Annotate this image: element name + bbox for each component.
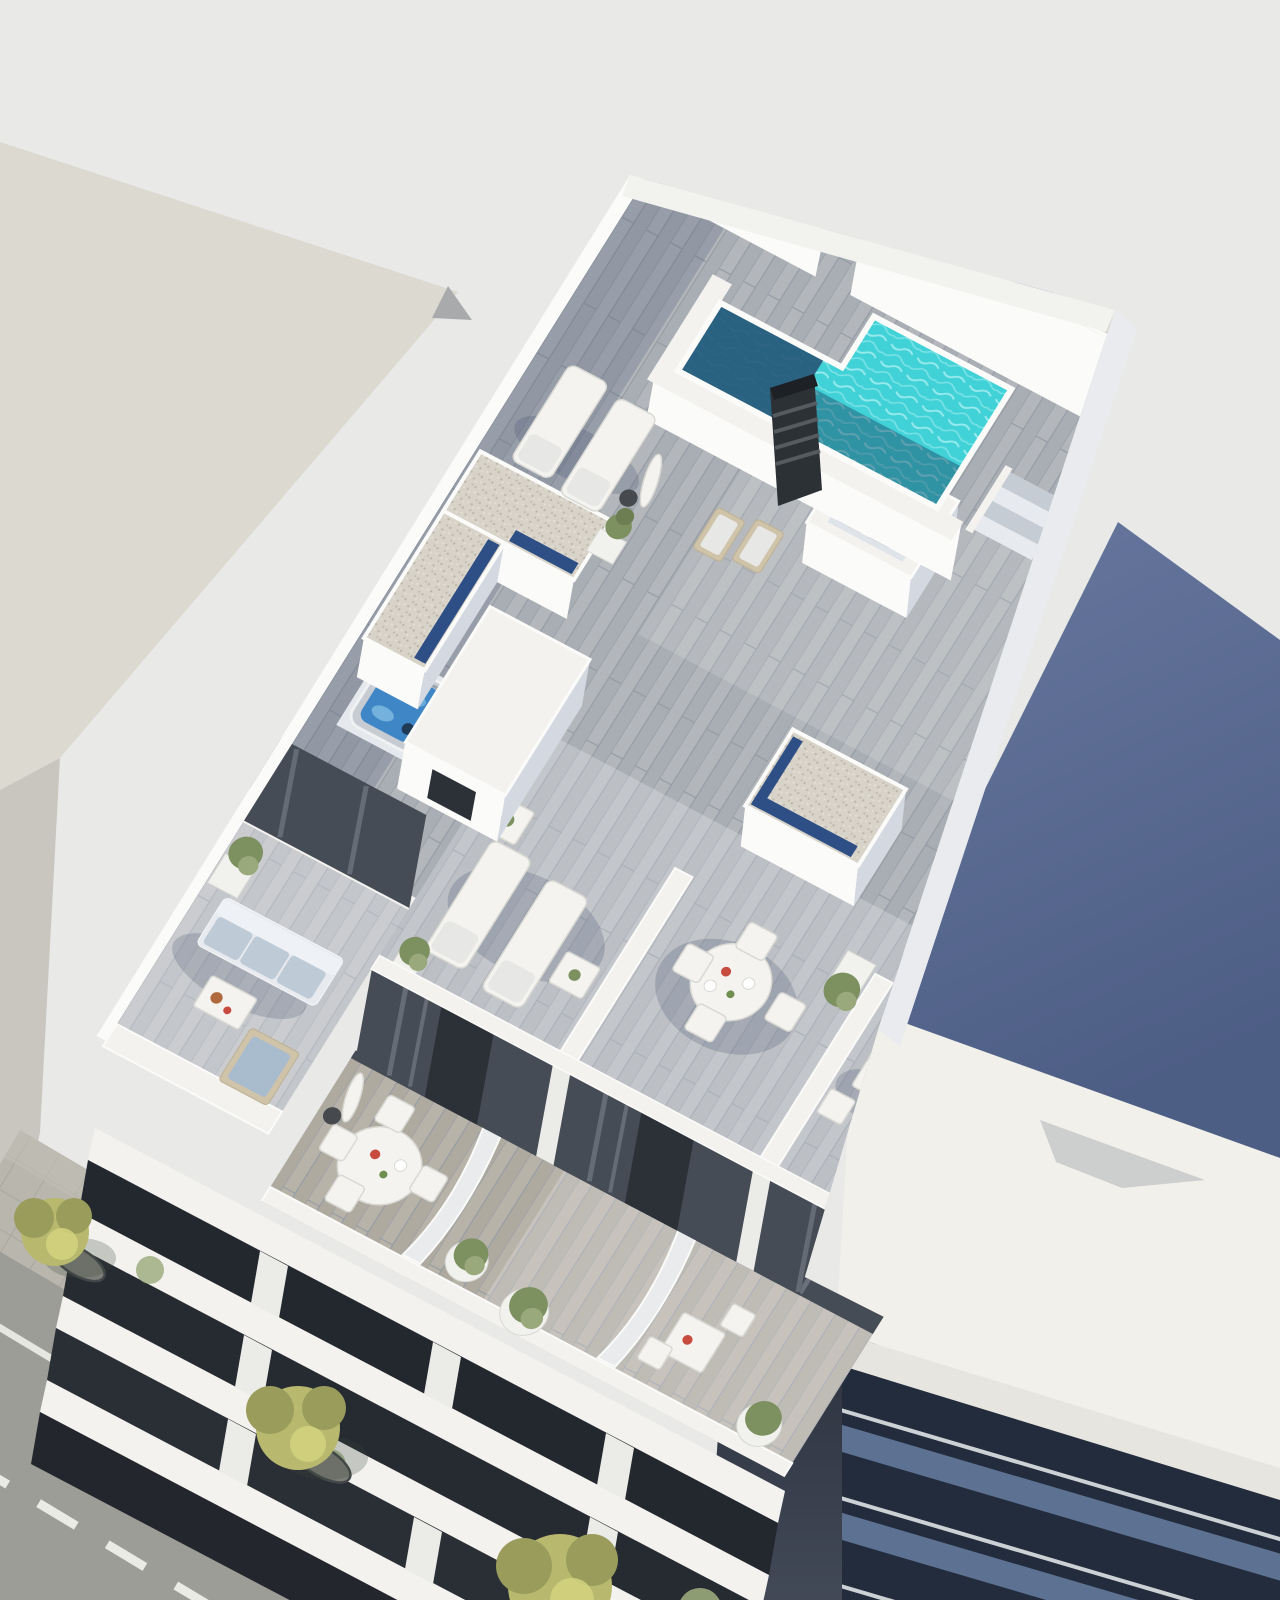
tree-canopy <box>496 1538 552 1594</box>
tree-canopy <box>302 1386 346 1430</box>
chimney <box>770 374 822 506</box>
street-tree <box>496 1534 623 1600</box>
tree-canopy <box>246 1386 294 1434</box>
render-canvas <box>0 0 1280 1600</box>
tree-highlight <box>290 1426 326 1462</box>
architectural-rendering <box>0 0 1280 1600</box>
tree-highlight <box>46 1228 78 1260</box>
balcony-plant <box>136 1256 164 1284</box>
tree-canopy <box>14 1198 54 1238</box>
